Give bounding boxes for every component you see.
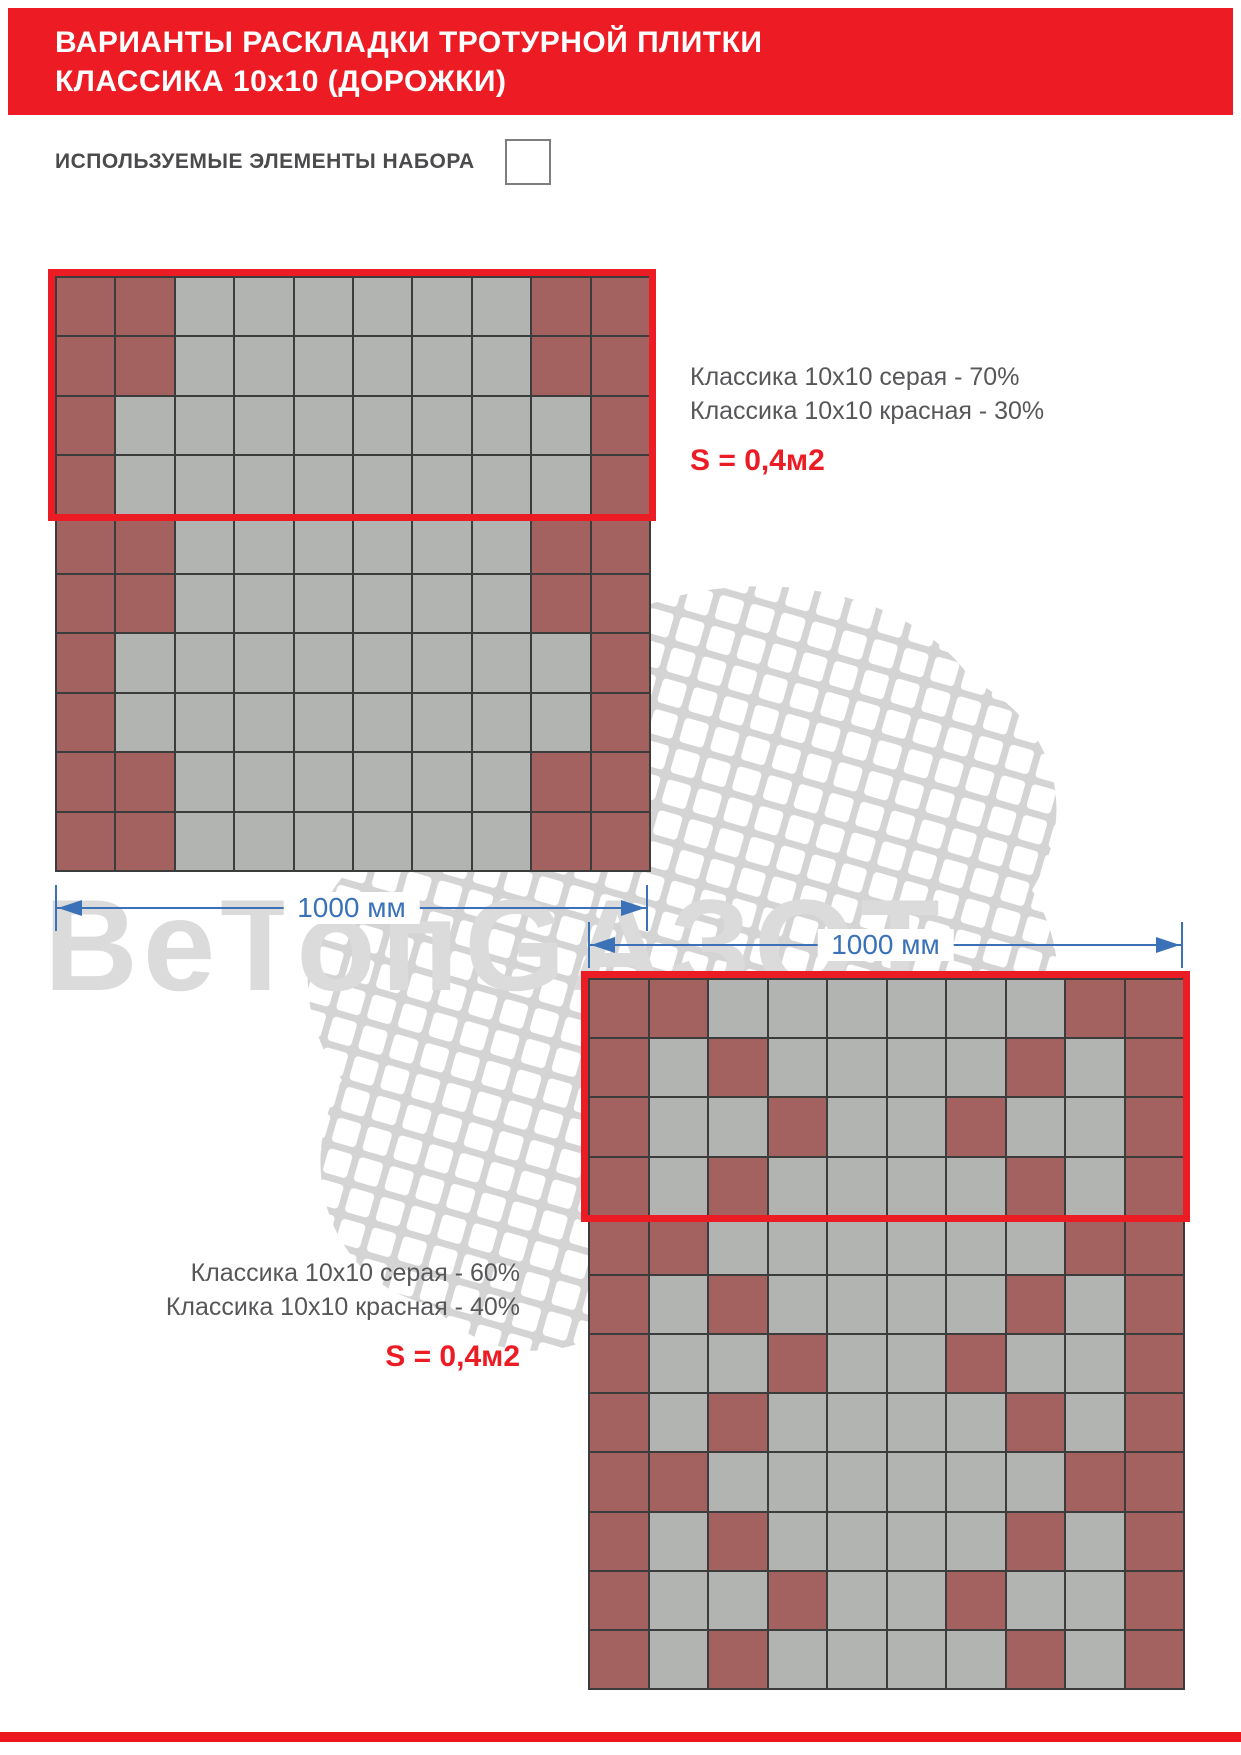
gray-tile (175, 277, 234, 336)
gray-tile (827, 1334, 887, 1393)
tile-grid-1 (55, 276, 651, 872)
red-tile (946, 1571, 1006, 1630)
gray-tile (708, 1097, 768, 1156)
red-tile (1125, 1216, 1185, 1275)
gray-tile (175, 336, 234, 395)
red-tile (589, 1630, 649, 1689)
layout-sheet-page: ВАРИАНТЫ РАСКЛАДКИ ТРОТУРНОЙ ПЛИТКИ КЛАС… (0, 0, 1241, 1755)
gray-tile (768, 1038, 828, 1097)
red-tile (708, 1630, 768, 1689)
gray-tile (946, 1512, 1006, 1571)
gray-tile (234, 574, 293, 633)
gray-tile (234, 277, 293, 336)
gray-tile (887, 1571, 947, 1630)
red-tile (768, 1334, 828, 1393)
gray-tile (115, 633, 174, 692)
gray-tile (175, 812, 234, 871)
gray-tile (708, 1571, 768, 1630)
legend-2-area-label: S = 0,4м2 (166, 1340, 520, 1374)
red-tile (531, 277, 590, 336)
gray-tile (1065, 1512, 1125, 1571)
gray-tile (1065, 1334, 1125, 1393)
red-tile (591, 752, 650, 811)
red-tile (589, 979, 649, 1038)
element-tile-sample (505, 139, 551, 185)
gray-tile (294, 277, 353, 336)
red-tile (56, 277, 115, 336)
gray-tile (708, 979, 768, 1038)
gray-tile (887, 1216, 947, 1275)
red-tile (589, 1097, 649, 1156)
gray-tile (531, 455, 590, 514)
gray-tile (887, 1452, 947, 1511)
gray-tile (887, 1512, 947, 1571)
gray-tile (472, 277, 531, 336)
gray-tile (827, 1452, 887, 1511)
elements-heading: ИСПОЛЬЗУЕМЫЕ ЭЛЕМЕНТЫ НАБОРА (55, 150, 475, 174)
red-tile (1065, 979, 1125, 1038)
gray-tile (946, 1393, 1006, 1452)
red-tile (591, 633, 650, 692)
red-tile (56, 633, 115, 692)
gray-tile (294, 633, 353, 692)
footer-bar (0, 1732, 1241, 1742)
legend-2: Классика 10x10 серая - 60% Классика 10x1… (166, 1256, 520, 1374)
gray-tile (294, 396, 353, 455)
red-tile (56, 455, 115, 514)
dimension-1-arrowhead-right (621, 900, 645, 916)
gray-tile (412, 455, 471, 514)
gray-tile (234, 812, 293, 871)
gray-tile (472, 574, 531, 633)
gray-tile (887, 1393, 947, 1452)
gray-tile (353, 633, 412, 692)
red-tile (591, 693, 650, 752)
legend-2-red-share: Классика 10x10 красная - 40% (166, 1290, 520, 1324)
red-tile (1006, 1038, 1066, 1097)
gray-tile (234, 633, 293, 692)
dimension-2-label: 1000 мм (817, 929, 954, 961)
gray-tile (1006, 979, 1066, 1038)
gray-tile (234, 336, 293, 395)
dimension-2-arrowhead-right (1156, 937, 1180, 953)
gray-tile (175, 515, 234, 574)
red-tile (115, 515, 174, 574)
gray-tile (649, 1334, 709, 1393)
gray-tile (412, 812, 471, 871)
red-tile (708, 1393, 768, 1452)
red-tile (1065, 1452, 1125, 1511)
gray-tile (412, 396, 471, 455)
red-tile (591, 574, 650, 633)
gray-tile (472, 455, 531, 514)
red-tile (1006, 1157, 1066, 1216)
gray-tile (887, 1157, 947, 1216)
gray-tile (768, 1157, 828, 1216)
red-tile (591, 455, 650, 514)
red-tile (56, 574, 115, 633)
red-tile (1125, 1334, 1185, 1393)
red-tile (115, 336, 174, 395)
red-tile (589, 1452, 649, 1511)
red-tile (1125, 1571, 1185, 1630)
red-tile (591, 396, 650, 455)
red-tile (1125, 1393, 1185, 1452)
red-tile (589, 1393, 649, 1452)
gray-tile (1065, 1630, 1125, 1689)
gray-tile (531, 396, 590, 455)
gray-tile (1006, 1452, 1066, 1511)
red-tile (1006, 1512, 1066, 1571)
gray-tile (708, 1334, 768, 1393)
red-tile (708, 1275, 768, 1334)
red-tile (56, 396, 115, 455)
red-tile (649, 979, 709, 1038)
gray-tile (412, 752, 471, 811)
gray-tile (768, 1216, 828, 1275)
gray-tile (412, 693, 471, 752)
legend-1-red-share: Классика 10x10 красная - 30% (690, 394, 1044, 428)
red-tile (591, 336, 650, 395)
gray-tile (353, 515, 412, 574)
dimension-2-tick-right (1181, 922, 1183, 968)
red-tile (649, 1452, 709, 1511)
gray-tile (294, 752, 353, 811)
dimension-2-arrowhead-left (591, 937, 615, 953)
gray-tile (472, 633, 531, 692)
gray-tile (1006, 1571, 1066, 1630)
gray-tile (708, 1216, 768, 1275)
gray-tile (115, 396, 174, 455)
gray-tile (827, 1571, 887, 1630)
red-tile (115, 752, 174, 811)
red-tile (115, 277, 174, 336)
gray-tile (294, 693, 353, 752)
gray-tile (353, 455, 412, 514)
red-tile (1125, 1157, 1185, 1216)
gray-tile (946, 1038, 1006, 1097)
gray-tile (887, 1097, 947, 1156)
gray-tile (353, 574, 412, 633)
gray-tile (649, 1097, 709, 1156)
red-tile (589, 1334, 649, 1393)
gray-tile (946, 1216, 1006, 1275)
gray-tile (175, 693, 234, 752)
gray-tile (472, 693, 531, 752)
gray-tile (294, 336, 353, 395)
gray-tile (412, 277, 471, 336)
red-tile (1125, 1630, 1185, 1689)
gray-tile (649, 1630, 709, 1689)
gray-tile (827, 1393, 887, 1452)
gray-tile (353, 693, 412, 752)
gray-tile (827, 1038, 887, 1097)
gray-tile (353, 396, 412, 455)
gray-tile (234, 752, 293, 811)
gray-tile (175, 574, 234, 633)
gray-tile (887, 1630, 947, 1689)
red-tile (1125, 979, 1185, 1038)
gray-tile (1065, 1038, 1125, 1097)
gray-tile (472, 336, 531, 395)
gray-tile (946, 1630, 1006, 1689)
gray-tile (412, 574, 471, 633)
page-title-line1: ВАРИАНТЫ РАСКЛАДКИ ТРОТУРНОЙ ПЛИТКИ (55, 23, 1233, 62)
legend-1-gray-share: Классика 10x10 серая - 70% (690, 360, 1044, 394)
red-tile (1125, 1038, 1185, 1097)
gray-tile (887, 1038, 947, 1097)
gray-tile (472, 812, 531, 871)
gray-tile (1006, 1334, 1066, 1393)
gray-tile (946, 1275, 1006, 1334)
gray-tile (887, 1334, 947, 1393)
dimension-1: 1000 мм (55, 885, 648, 931)
red-tile (649, 1216, 709, 1275)
red-tile (56, 515, 115, 574)
gray-tile (234, 693, 293, 752)
gray-tile (294, 574, 353, 633)
red-tile (591, 515, 650, 574)
gray-tile (175, 455, 234, 514)
gray-tile (649, 1571, 709, 1630)
gray-tile (472, 752, 531, 811)
gray-tile (649, 1275, 709, 1334)
red-tile (768, 1097, 828, 1156)
gray-tile (768, 979, 828, 1038)
gray-tile (1006, 1216, 1066, 1275)
dimension-1-arrowhead-left (58, 900, 82, 916)
gray-tile (768, 1512, 828, 1571)
gray-tile (472, 515, 531, 574)
gray-tile (768, 1393, 828, 1452)
gray-tile (649, 1512, 709, 1571)
gray-tile (827, 1630, 887, 1689)
red-tile (591, 277, 650, 336)
gray-tile (827, 979, 887, 1038)
red-tile (56, 752, 115, 811)
gray-tile (234, 396, 293, 455)
red-tile (56, 336, 115, 395)
gray-tile (353, 336, 412, 395)
red-tile (589, 1157, 649, 1216)
tile-grid-2 (588, 978, 1185, 1690)
gray-tile (294, 455, 353, 514)
gray-tile (946, 1157, 1006, 1216)
red-tile (946, 1097, 1006, 1156)
legend-1: Классика 10x10 серая - 70% Классика 10x1… (690, 360, 1044, 478)
red-tile (531, 574, 590, 633)
gray-tile (115, 693, 174, 752)
gray-tile (115, 455, 174, 514)
gray-tile (827, 1157, 887, 1216)
gray-tile (294, 515, 353, 574)
gray-tile (768, 1630, 828, 1689)
gray-tile (412, 336, 471, 395)
red-tile (115, 574, 174, 633)
gray-tile (827, 1216, 887, 1275)
gray-tile (1006, 1097, 1066, 1156)
red-tile (591, 812, 650, 871)
red-tile (1006, 1275, 1066, 1334)
red-tile (708, 1157, 768, 1216)
red-tile (115, 812, 174, 871)
red-tile (589, 1275, 649, 1334)
gray-tile (472, 396, 531, 455)
gray-tile (353, 277, 412, 336)
gray-tile (1065, 1393, 1125, 1452)
gray-tile (234, 515, 293, 574)
gray-tile (649, 1393, 709, 1452)
red-tile (1006, 1393, 1066, 1452)
red-tile (1065, 1216, 1125, 1275)
gray-tile (827, 1097, 887, 1156)
gray-tile (294, 812, 353, 871)
gray-tile (1065, 1571, 1125, 1630)
gray-tile (175, 752, 234, 811)
red-tile (946, 1334, 1006, 1393)
red-tile (1125, 1275, 1185, 1334)
red-tile (56, 812, 115, 871)
gray-tile (353, 752, 412, 811)
red-tile (531, 336, 590, 395)
gray-tile (531, 693, 590, 752)
gray-tile (531, 633, 590, 692)
gray-tile (175, 396, 234, 455)
red-tile (531, 752, 590, 811)
gray-tile (827, 1512, 887, 1571)
gray-tile (1065, 1097, 1125, 1156)
red-tile (768, 1571, 828, 1630)
red-tile (1006, 1630, 1066, 1689)
page-title-line2: КЛАССИКА 10x10 (ДОРОЖКИ) (55, 62, 1233, 101)
red-tile (531, 515, 590, 574)
gray-tile (412, 633, 471, 692)
gray-tile (234, 455, 293, 514)
gray-tile (946, 1452, 1006, 1511)
red-tile (56, 693, 115, 752)
red-tile (589, 1512, 649, 1571)
gray-tile (887, 1275, 947, 1334)
gray-tile (1065, 1157, 1125, 1216)
gray-tile (827, 1275, 887, 1334)
dimension-2: 1000 мм (588, 922, 1183, 968)
header-banner: ВАРИАНТЫ РАСКЛАДКИ ТРОТУРНОЙ ПЛИТКИ КЛАС… (8, 8, 1233, 115)
red-tile (1125, 1452, 1185, 1511)
gray-tile (946, 979, 1006, 1038)
legend-2-gray-share: Классика 10x10 серая - 60% (166, 1256, 520, 1290)
red-tile (1125, 1097, 1185, 1156)
gray-tile (649, 1157, 709, 1216)
dimension-1-label: 1000 мм (283, 892, 420, 924)
gray-tile (175, 633, 234, 692)
red-tile (708, 1512, 768, 1571)
gray-tile (1065, 1275, 1125, 1334)
gray-tile (887, 979, 947, 1038)
legend-1-area-label: S = 0,4м2 (690, 444, 1044, 478)
red-tile (589, 1571, 649, 1630)
gray-tile (768, 1275, 828, 1334)
gray-tile (649, 1038, 709, 1097)
red-tile (708, 1038, 768, 1097)
gray-tile (353, 812, 412, 871)
gray-tile (768, 1452, 828, 1511)
gray-tile (708, 1452, 768, 1511)
red-tile (531, 812, 590, 871)
gray-tile (412, 515, 471, 574)
red-tile (589, 1038, 649, 1097)
red-tile (1125, 1512, 1185, 1571)
red-tile (589, 1216, 649, 1275)
